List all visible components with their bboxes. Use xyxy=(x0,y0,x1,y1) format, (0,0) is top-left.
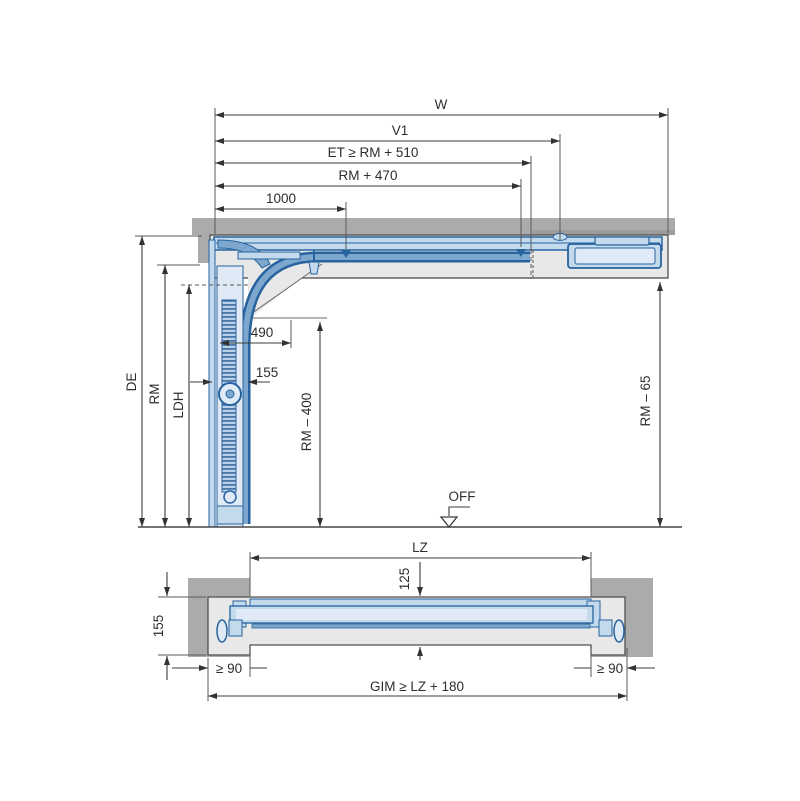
door-installation-diagram: W V1 ET ≥ RM + 510 RM + 470 1000 490 155… xyxy=(0,0,800,801)
dim-label-gim: GIM ≥ LZ + 180 xyxy=(370,679,464,694)
dim-label-90-right: ≥ 90 xyxy=(597,661,623,676)
dim-label-90-left: ≥ 90 xyxy=(216,661,242,676)
cable-drum-hub xyxy=(226,390,234,398)
ceiling-shadow xyxy=(533,230,675,235)
bottom-bracket xyxy=(217,506,243,524)
dim-label-rm65: RM – 65 xyxy=(638,375,653,426)
dim-label-lz: LZ xyxy=(412,540,428,555)
lintel-angle-strip xyxy=(250,599,591,606)
floor-level-leader xyxy=(449,507,470,516)
dim-label-rm470: RM + 470 xyxy=(339,168,398,183)
dim-label-125: 125 xyxy=(397,568,412,591)
dim-label-ldh: LDH xyxy=(171,391,186,418)
vertical-frame-angle xyxy=(209,240,215,527)
track-bend xyxy=(245,257,530,524)
track-bend-outline xyxy=(245,257,530,524)
dim-label-155: 155 xyxy=(256,365,279,380)
plan-view: LZ 125 155 ≥ 90 ≥ 90 GIM ≥ LZ + 180 xyxy=(151,540,655,701)
operator-head-cover xyxy=(575,248,655,264)
roller-carrier-right xyxy=(599,620,612,636)
diagram-canvas: W V1 ET ≥ RM + 510 RM + 470 1000 490 155… xyxy=(0,0,800,801)
roller-right xyxy=(614,620,624,642)
dim-label-155-plan: 155 xyxy=(151,615,166,638)
suspension-foot xyxy=(309,262,319,274)
dim-label-v1: V1 xyxy=(392,123,409,138)
header-console-rail xyxy=(238,252,300,259)
section-view: W V1 ET ≥ RM + 510 RM + 470 1000 490 155… xyxy=(124,97,682,527)
floor-level-triangle-icon xyxy=(441,517,457,527)
dim-label-et: ET ≥ RM + 510 xyxy=(328,145,419,160)
dim-label-1000: 1000 xyxy=(266,191,296,206)
dim-label-490: 490 xyxy=(251,325,274,340)
dim-label-rm400: RM – 400 xyxy=(299,393,314,452)
dim-label-rm: RM xyxy=(147,384,162,405)
dim-label-de: DE xyxy=(124,373,139,392)
roller-carrier-left xyxy=(229,620,242,636)
operator-head-bump xyxy=(595,237,649,245)
bottom-roller xyxy=(224,491,236,503)
roller-left xyxy=(217,620,227,642)
floor-level-label: OFF xyxy=(449,489,476,504)
dim-label-w: W xyxy=(435,97,448,112)
door-panel-inner xyxy=(236,609,587,620)
door-seal-strip xyxy=(252,624,590,628)
